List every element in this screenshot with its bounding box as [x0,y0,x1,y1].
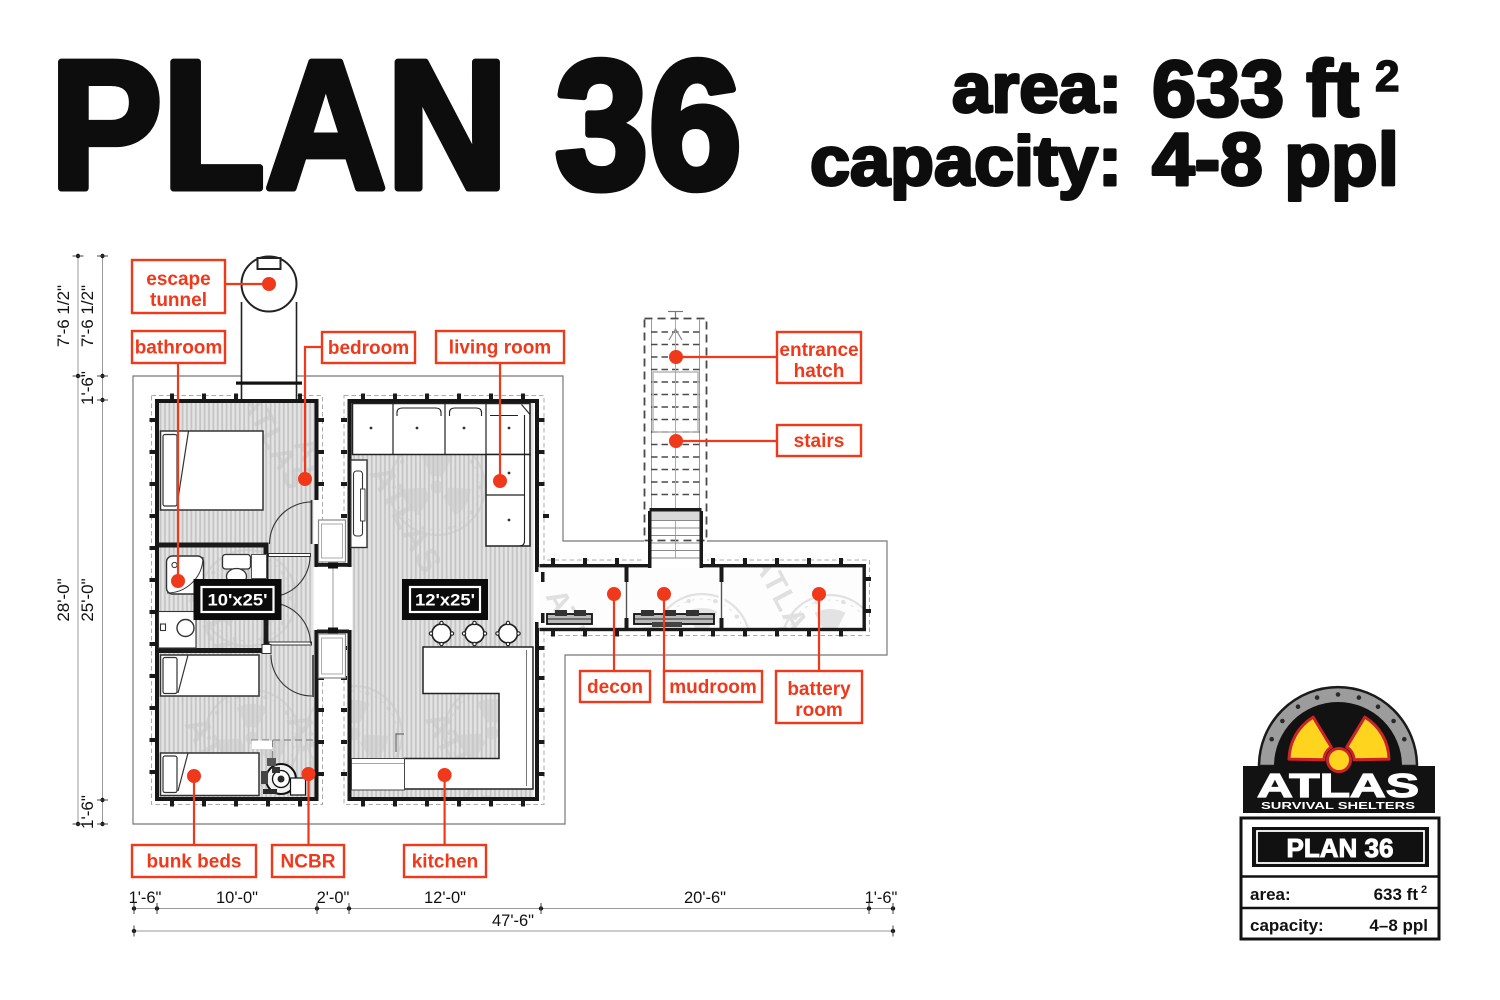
svg-text:2: 2 [1421,884,1427,896]
svg-text:capacity:: capacity: [1250,916,1324,935]
svg-text:SURVIVAL SHELTERS: SURVIVAL SHELTERS [1261,801,1415,812]
svg-text:4–8 ppl: 4–8 ppl [1369,916,1428,935]
svg-text:stairs: stairs [794,431,845,452]
svg-text:28'-0": 28'-0" [54,578,73,621]
svg-text:area:: area: [1250,885,1291,904]
svg-text:mudroom: mudroom [669,677,757,698]
svg-text:1'-6": 1'-6" [129,889,162,907]
svg-text:1'-6": 1'-6" [865,889,898,907]
svg-text:room: room [795,700,843,721]
svg-text:living room: living room [449,338,551,359]
svg-text:area:: area: [952,49,1122,127]
svg-text:PLAN 36: PLAN 36 [1287,833,1394,863]
svg-text:20'-6": 20'-6" [684,889,726,907]
svg-text:capacity:: capacity: [810,122,1122,200]
svg-text:escape: escape [146,269,210,290]
svg-text:2: 2 [1375,52,1399,101]
svg-text:10'x25': 10'x25' [208,591,268,610]
svg-text:25'-0": 25'-0" [78,578,97,621]
svg-text:7'-6 1/2": 7'-6 1/2" [54,285,73,347]
svg-text:NCBR: NCBR [281,852,336,873]
svg-text:bedroom: bedroom [328,338,409,359]
svg-text:12'x25': 12'x25' [415,591,475,610]
svg-text:entrance: entrance [779,340,858,361]
svg-text:7'-6 1/2": 7'-6 1/2" [78,285,97,347]
svg-text:PLAN 36: PLAN 36 [50,22,742,227]
svg-text:decon: decon [587,677,643,698]
svg-text:tunnel: tunnel [150,290,207,311]
svg-text:battery: battery [787,679,851,700]
svg-text:2'-0": 2'-0" [317,889,350,907]
svg-text:kitchen: kitchen [412,852,479,873]
svg-text:1'-6": 1'-6" [78,795,97,829]
svg-text:47'-6": 47'-6" [492,912,534,930]
svg-text:ATLAS: ATLAS [1257,767,1419,804]
svg-text:bunk beds: bunk beds [146,852,241,873]
svg-text:633 ft: 633 ft [1374,885,1419,904]
svg-text:hatch: hatch [794,361,845,382]
svg-text:1'-6": 1'-6" [78,371,97,405]
svg-text:4-8 ppl: 4-8 ppl [1152,118,1399,201]
svg-text:10'-0": 10'-0" [216,889,258,907]
svg-text:bathroom: bathroom [135,338,223,359]
svg-text:12'-0": 12'-0" [424,889,466,907]
